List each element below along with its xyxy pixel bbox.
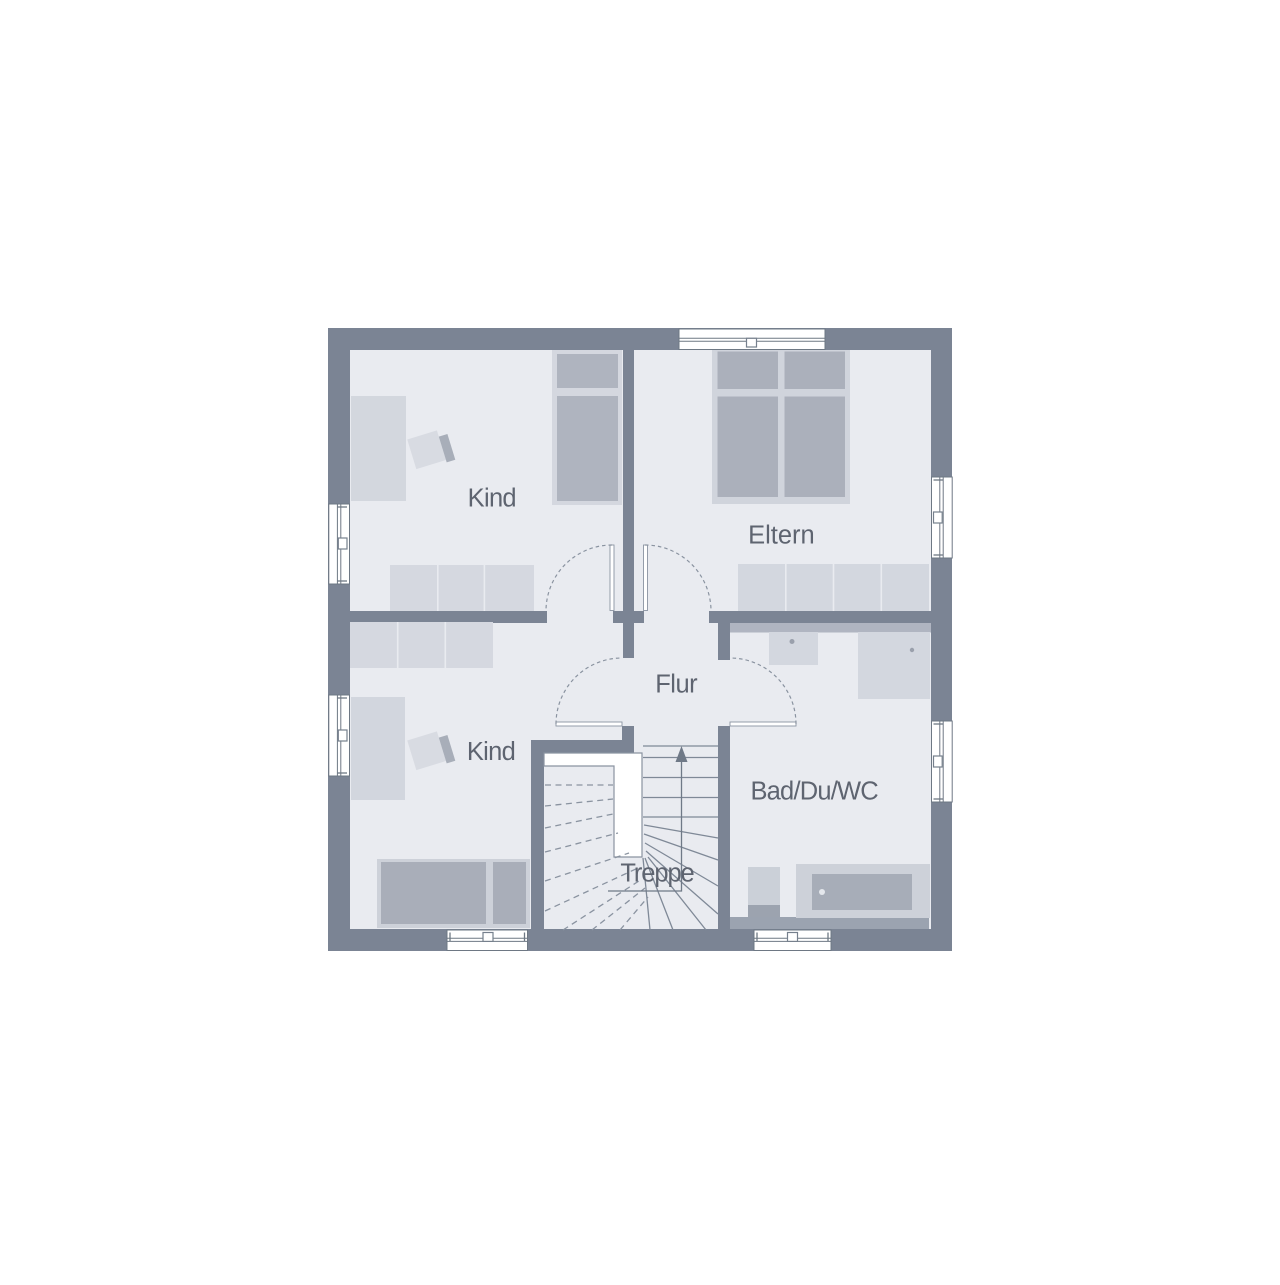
svg-text:Bad/Du/WC: Bad/Du/WC bbox=[750, 778, 878, 806]
svg-text:Kind: Kind bbox=[468, 485, 516, 513]
svg-text:Treppe: Treppe bbox=[620, 860, 694, 888]
svg-text:Kind: Kind bbox=[467, 738, 515, 766]
svg-text:Eltern: Eltern bbox=[748, 522, 815, 550]
svg-text:Flur: Flur bbox=[655, 671, 698, 699]
